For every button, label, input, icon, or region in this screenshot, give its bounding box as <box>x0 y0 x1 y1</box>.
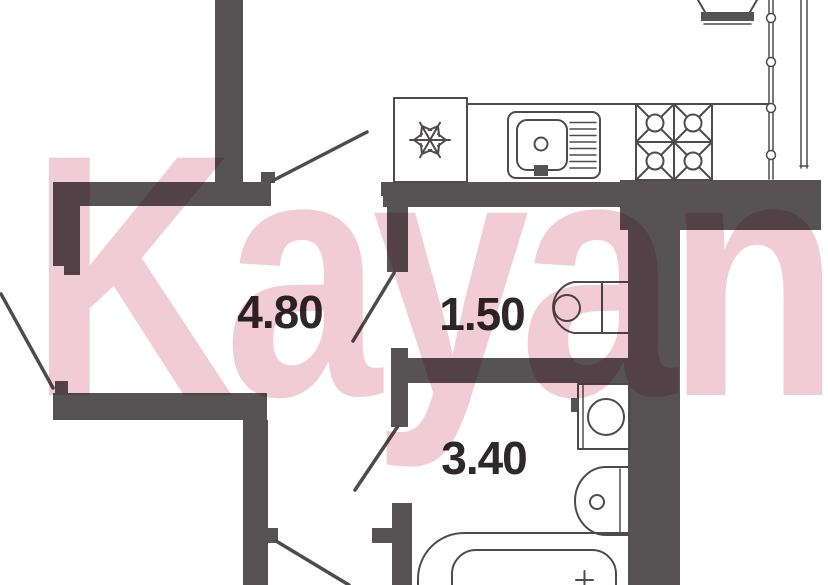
burner-icon <box>685 153 702 170</box>
jamb-wc-top <box>381 182 388 196</box>
kitchen-fixtures <box>394 98 770 182</box>
jamb-bath-door <box>372 528 392 543</box>
left-room-door-swing <box>1 294 53 388</box>
windows <box>767 0 809 179</box>
toilet-bowl <box>553 282 628 333</box>
burner-icon <box>647 153 664 170</box>
fixture-bar <box>701 12 754 21</box>
bathroom-area-label: 3.40 <box>428 435 540 481</box>
floor-plan-canvas: 4.80 1.50 3.40 Kayan <box>0 0 828 585</box>
wc-area-label: 1.50 <box>428 291 536 337</box>
wall-right <box>628 207 680 585</box>
wall-wc-bath-tee <box>391 348 408 427</box>
burner-icon <box>685 115 702 132</box>
jamb-left-door <box>55 381 68 393</box>
bathroom-door-swing <box>355 426 398 490</box>
window-joint-icon <box>767 58 776 67</box>
washbasin-drain <box>590 495 604 509</box>
wall-hallway-bottom <box>53 393 267 420</box>
sink-bowl <box>517 120 567 170</box>
sink-faucet <box>534 165 548 176</box>
washing-machine <box>578 384 630 449</box>
snowflake-icon <box>410 123 450 158</box>
wc-door-swing <box>353 273 394 341</box>
sink-drain <box>535 138 548 151</box>
wall-wc-bath-divider <box>408 358 628 383</box>
washing-machine-door <box>588 399 624 435</box>
fixture-sides <box>698 0 757 12</box>
bottom-room-door-swing <box>276 541 349 585</box>
washing-machine-stub <box>571 398 578 412</box>
window-joint-icon <box>767 104 776 113</box>
balcony-glazing-line <box>800 0 808 168</box>
wall-left-upper <box>53 182 80 266</box>
floor-plan-drawing <box>0 0 828 585</box>
bathroom-fixtures <box>418 384 630 585</box>
wall-bottom-left-vertical <box>243 420 268 585</box>
wc-fixtures <box>553 282 628 333</box>
wall-hallway-top <box>53 182 271 206</box>
burner-icon <box>647 115 664 132</box>
wall-kitchen-bottom <box>383 182 628 207</box>
wall-top-center-vertical <box>215 0 243 183</box>
top-right-partial-fixture <box>698 0 757 24</box>
wall-bath-door-post <box>392 503 412 585</box>
window-joint-icon <box>767 151 776 160</box>
wall-wc-left-column <box>387 182 408 272</box>
kitchen-door-swing <box>272 132 367 181</box>
window-joint-icon <box>767 14 776 23</box>
bathtub-faucet-cross-icon <box>576 571 593 585</box>
toilet-drain <box>554 295 580 321</box>
wall-left-upper-jamb <box>64 264 80 275</box>
bathtub-outline <box>418 533 628 585</box>
drainboard-lines <box>570 123 596 169</box>
hallway-area-label: 4.80 <box>225 289 335 335</box>
